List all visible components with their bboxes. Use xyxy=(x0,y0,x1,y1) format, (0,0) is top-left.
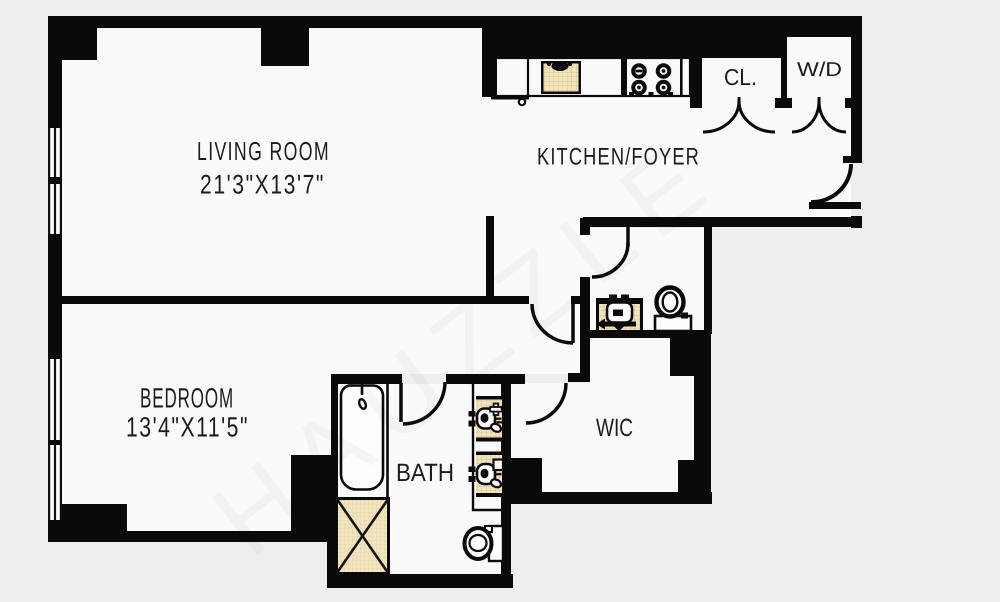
svg-text:W/D: W/D xyxy=(797,59,842,81)
svg-text:LIVING ROOM: LIVING ROOM xyxy=(197,136,330,166)
svg-text:21'3"X13'7": 21'3"X13'7" xyxy=(200,170,325,200)
svg-text:BEDROOM: BEDROOM xyxy=(140,383,234,414)
svg-text:13'4"X11'5": 13'4"X11'5" xyxy=(126,412,249,443)
svg-text:WIC: WIC xyxy=(596,414,633,442)
svg-text:CL.: CL. xyxy=(724,64,757,90)
